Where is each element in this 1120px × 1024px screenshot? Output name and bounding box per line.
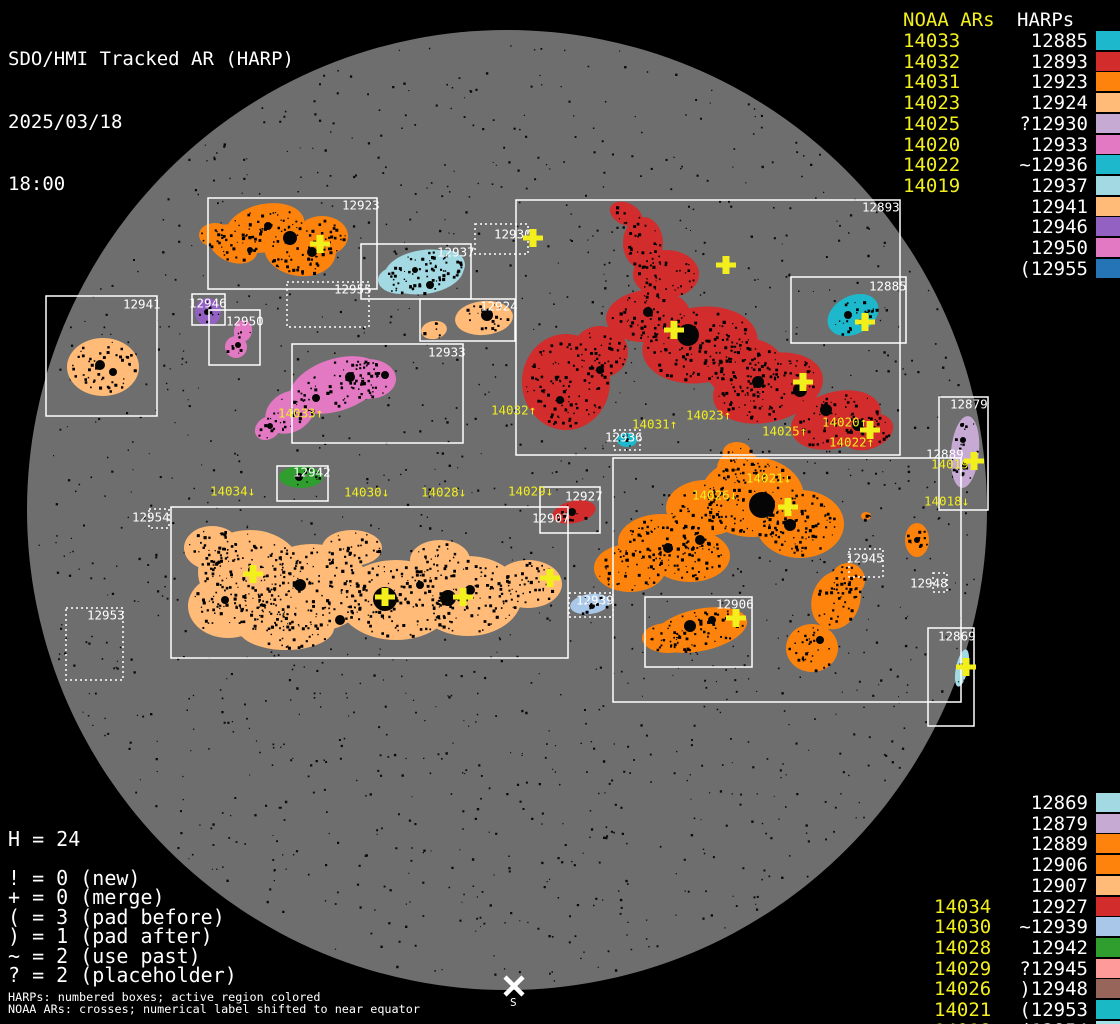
harp-number: 12937 (1000, 175, 1088, 197)
noaa-ar-label: 14019↑ (931, 457, 976, 472)
sunspot (695, 535, 705, 545)
color-swatch-12955 (1096, 259, 1120, 278)
harp-number: 12927 (1000, 896, 1088, 918)
harp-box-label-12907: 12907 (532, 511, 570, 526)
noaa-ar-label: 14023↑ (686, 408, 731, 423)
harp-number: ?12945 (1000, 958, 1088, 980)
sunspot (663, 543, 673, 553)
harp-count-label: H = 24 (8, 829, 80, 851)
harp-box-label-12948: 12948 (910, 576, 948, 591)
noaa-ar-label: 14028↓ (421, 485, 466, 500)
color-swatch-12907 (1096, 876, 1120, 895)
region-blob (184, 526, 240, 570)
sunspot (684, 620, 696, 632)
harp-box-label-12950: 12950 (226, 314, 264, 329)
harp-box-label-12954: 12954 (132, 510, 170, 525)
sunspot (844, 311, 852, 319)
sunspot (816, 636, 824, 644)
sunspot (294, 579, 306, 591)
harp-box-label-12893: 12893 (862, 200, 900, 215)
noaa-ar-label: 14022↑ (829, 435, 874, 450)
noaa-ar-label: 14033↑ (278, 406, 323, 421)
sunspot (235, 342, 241, 348)
sunspot (345, 372, 355, 382)
noaa-ar-number: 14019 (903, 175, 960, 197)
sunspot (247, 247, 253, 253)
noaa-ar-label: 14020↑ (822, 415, 867, 430)
harp-box-label-12885: 12885 (869, 279, 907, 294)
harp-number: 12869 (1000, 792, 1088, 814)
harp-box-label-12927: 12927 (565, 489, 603, 504)
color-swatch-12893 (1096, 52, 1120, 71)
sunspot (556, 396, 564, 404)
noaa-ar-label: 14025↑ (762, 424, 807, 439)
harp-number: 12879 (1000, 813, 1088, 835)
sunspot (109, 368, 117, 376)
harp-tracker-view: 1292312937129551293012924129411294612950… (0, 0, 1120, 1024)
sunspot (596, 366, 604, 374)
color-swatch-12953 (1096, 1000, 1120, 1019)
harp-box-label-12936: 12936 (605, 430, 643, 445)
south-label: S (510, 996, 517, 1009)
harp-number: 12942 (1000, 937, 1088, 959)
color-swatch-12937 (1096, 176, 1120, 195)
color-swatch-12885 (1096, 31, 1120, 50)
noaa-ar-number: 14031 (903, 71, 960, 93)
color-swatch-12923 (1096, 72, 1120, 91)
harp-column-header: HARPs (1017, 10, 1074, 31)
noaa-ar-number: 14033 (903, 30, 960, 52)
sunspot (307, 247, 317, 257)
color-swatch-12889 (1096, 834, 1120, 853)
noaa-ar-label: 14034↓ (210, 484, 255, 499)
sunspot (752, 376, 764, 388)
harp-number: 12946 (1000, 216, 1088, 238)
harp-box-label-12939: 12939 (576, 593, 614, 608)
sunspot (708, 616, 716, 624)
harp-number: 12933 (1000, 134, 1088, 156)
color-swatch-12930 (1096, 114, 1120, 133)
sunspot (914, 537, 920, 543)
sunspot (643, 307, 653, 317)
color-swatch-12869 (1096, 793, 1120, 812)
time-label: 18:00 (8, 174, 294, 195)
sunspot (312, 394, 320, 402)
harp-number: (12955 (1000, 258, 1088, 280)
harp-number: (12953 (1000, 999, 1088, 1021)
sunspot (335, 615, 345, 625)
app-title: SDO/HMI Tracked AR (HARP) (8, 49, 294, 70)
harp-number: ~12939 (1000, 916, 1088, 938)
date-label: 2025/03/18 (8, 112, 294, 133)
region-blob (322, 530, 382, 566)
color-swatch-12906 (1096, 855, 1120, 874)
noaa-ar-number: 14021 (934, 999, 991, 1021)
noaa-ar-number: 14026 (934, 978, 991, 1000)
noaa-ar-number: 14025 (903, 113, 960, 135)
sunspot (267, 423, 273, 429)
harp-number: 12893 (1000, 51, 1088, 73)
color-swatch-12879 (1096, 814, 1120, 833)
color-swatch-12939 (1096, 917, 1120, 936)
noaa-ar-label: 14031↑ (632, 417, 677, 432)
harp-number: (12954 (1000, 1020, 1088, 1024)
noaa-ar-number: 14029 (934, 958, 991, 980)
color-swatch-12941 (1096, 197, 1120, 216)
color-swatch-12948 (1096, 979, 1120, 998)
harp-number: 12906 (1000, 854, 1088, 876)
sunspot (426, 281, 434, 289)
color-swatch-12924 (1096, 93, 1120, 112)
noaa-ar-number: 14030 (934, 916, 991, 938)
noaa-ar-number: 14018 (934, 1020, 991, 1024)
harp-box-label-12879: 12879 (950, 397, 988, 412)
page-title: SDO/HMI Tracked AR (HARP) 2025/03/18 18:… (8, 8, 294, 236)
footnote-line: NOAA ARs: crosses; numerical label shift… (8, 1003, 420, 1016)
noaa-ar-label: 14032↑ (491, 403, 536, 418)
noaa-ar-label: 14018↓ (924, 494, 969, 509)
sunspot (677, 324, 699, 346)
harp-box-label-12941: 12941 (123, 297, 161, 312)
harp-box-label-12923: 12923 (342, 198, 380, 213)
harp-number: 12907 (1000, 875, 1088, 897)
harp-box-label-12869: 12869 (938, 629, 976, 644)
harp-box-label-12946: 12946 (189, 296, 227, 311)
harp-box-label-12937: 12937 (437, 245, 475, 260)
color-swatch-12945 (1096, 959, 1120, 978)
noaa-ar-label: 14029↓ (508, 484, 553, 499)
harp-number: 12885 (1000, 30, 1088, 52)
sunspot (221, 596, 229, 604)
harp-number: )12948 (1000, 978, 1088, 1000)
color-swatch-12927 (1096, 897, 1120, 916)
harp-box-label-12945: 12945 (846, 551, 884, 566)
harp-number: ?12930 (1000, 113, 1088, 135)
sunspot (412, 267, 418, 273)
harp-box-label-12933: 12933 (428, 345, 466, 360)
noaa-ar-number: 14032 (903, 51, 960, 73)
sunspot (784, 519, 796, 531)
sunspot (960, 423, 964, 427)
color-swatch-12936 (1096, 155, 1120, 174)
harp-box-label-12924: 12924 (480, 299, 518, 314)
harp-number: 12923 (1000, 71, 1088, 93)
noaa-ar-number: 14028 (934, 937, 991, 959)
harp-box-label-12953: 12953 (87, 608, 125, 623)
harp-number: 12950 (1000, 237, 1088, 259)
noaa-ar-label: 14030↓ (344, 485, 389, 500)
harp-number: 12924 (1000, 92, 1088, 114)
color-swatch-12950 (1096, 238, 1120, 257)
harp-number: 12889 (1000, 833, 1088, 855)
sunspot (416, 581, 424, 589)
noaa-ar-number: 14020 (903, 134, 960, 156)
active-region-12941 (67, 338, 139, 396)
harp-box-label-12942: 12942 (293, 465, 331, 480)
noaa-ar-number: 14034 (934, 896, 991, 918)
harp-number: 12941 (1000, 196, 1088, 218)
sunspot (381, 371, 389, 379)
color-swatch-12933 (1096, 135, 1120, 154)
sunspot (95, 360, 105, 370)
color-swatch-12942 (1096, 938, 1120, 957)
sunspot (749, 492, 775, 518)
legend-symbol-line: ? = 2 (placeholder) (8, 965, 237, 987)
noaa-ar-number: 14023 (903, 92, 960, 114)
harp-box-label-12955: 12955 (334, 282, 372, 297)
noaa-ar-number: 14022 (903, 154, 960, 176)
noaa-column-header: NOAA ARs (903, 10, 995, 31)
noaa-ar-label: 14021↓ (746, 471, 791, 486)
noaa-ar-label: 14026↓ (692, 488, 737, 503)
harp-number: ~12936 (1000, 154, 1088, 176)
color-swatch-12946 (1096, 217, 1120, 236)
sunspot (960, 437, 966, 443)
